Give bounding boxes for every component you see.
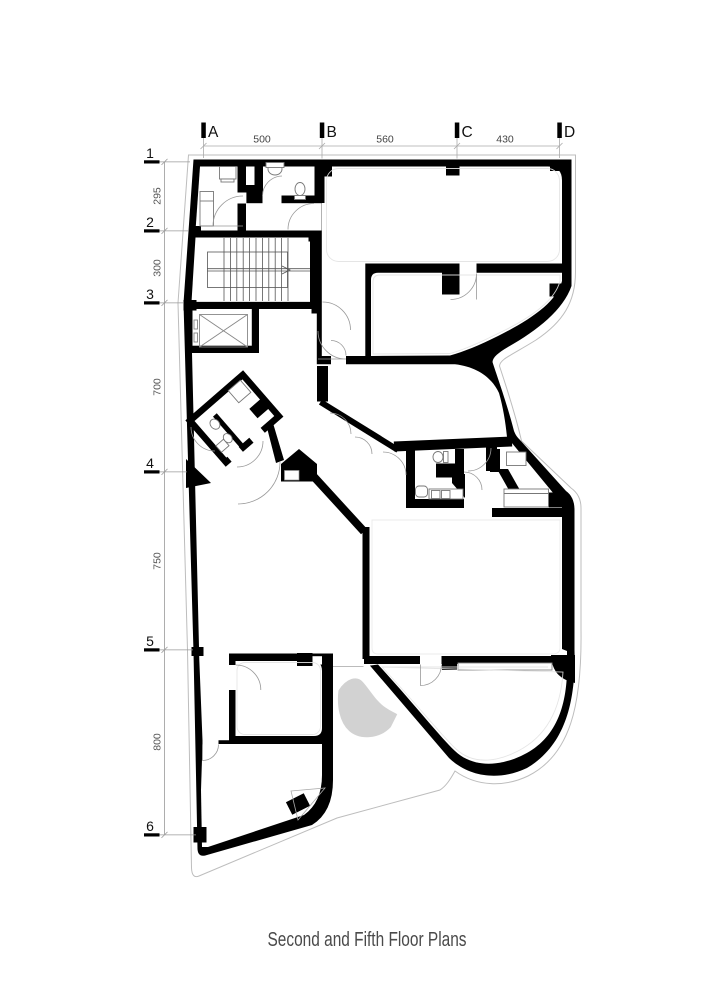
svg-text:A: A	[208, 124, 219, 141]
svg-text:B: B	[327, 124, 337, 141]
svg-text:300: 300	[152, 259, 164, 277]
svg-text:3: 3	[146, 286, 154, 302]
svg-text:700: 700	[152, 378, 164, 396]
svg-text:750: 750	[152, 552, 164, 570]
svg-text:295: 295	[152, 187, 164, 205]
svg-text:4: 4	[146, 455, 154, 471]
svg-text:560: 560	[376, 134, 394, 146]
svg-text:6: 6	[146, 818, 154, 834]
svg-text:Second and Fifth Floor Plans: Second and Fifth Floor Plans	[268, 929, 467, 951]
svg-text:2: 2	[146, 214, 154, 230]
svg-text:1: 1	[146, 145, 154, 161]
svg-text:430: 430	[496, 134, 514, 146]
svg-text:800: 800	[152, 733, 164, 751]
svg-text:500: 500	[253, 134, 271, 146]
svg-text:5: 5	[146, 633, 154, 649]
svg-text:C: C	[462, 124, 473, 141]
svg-text:D: D	[564, 124, 575, 141]
